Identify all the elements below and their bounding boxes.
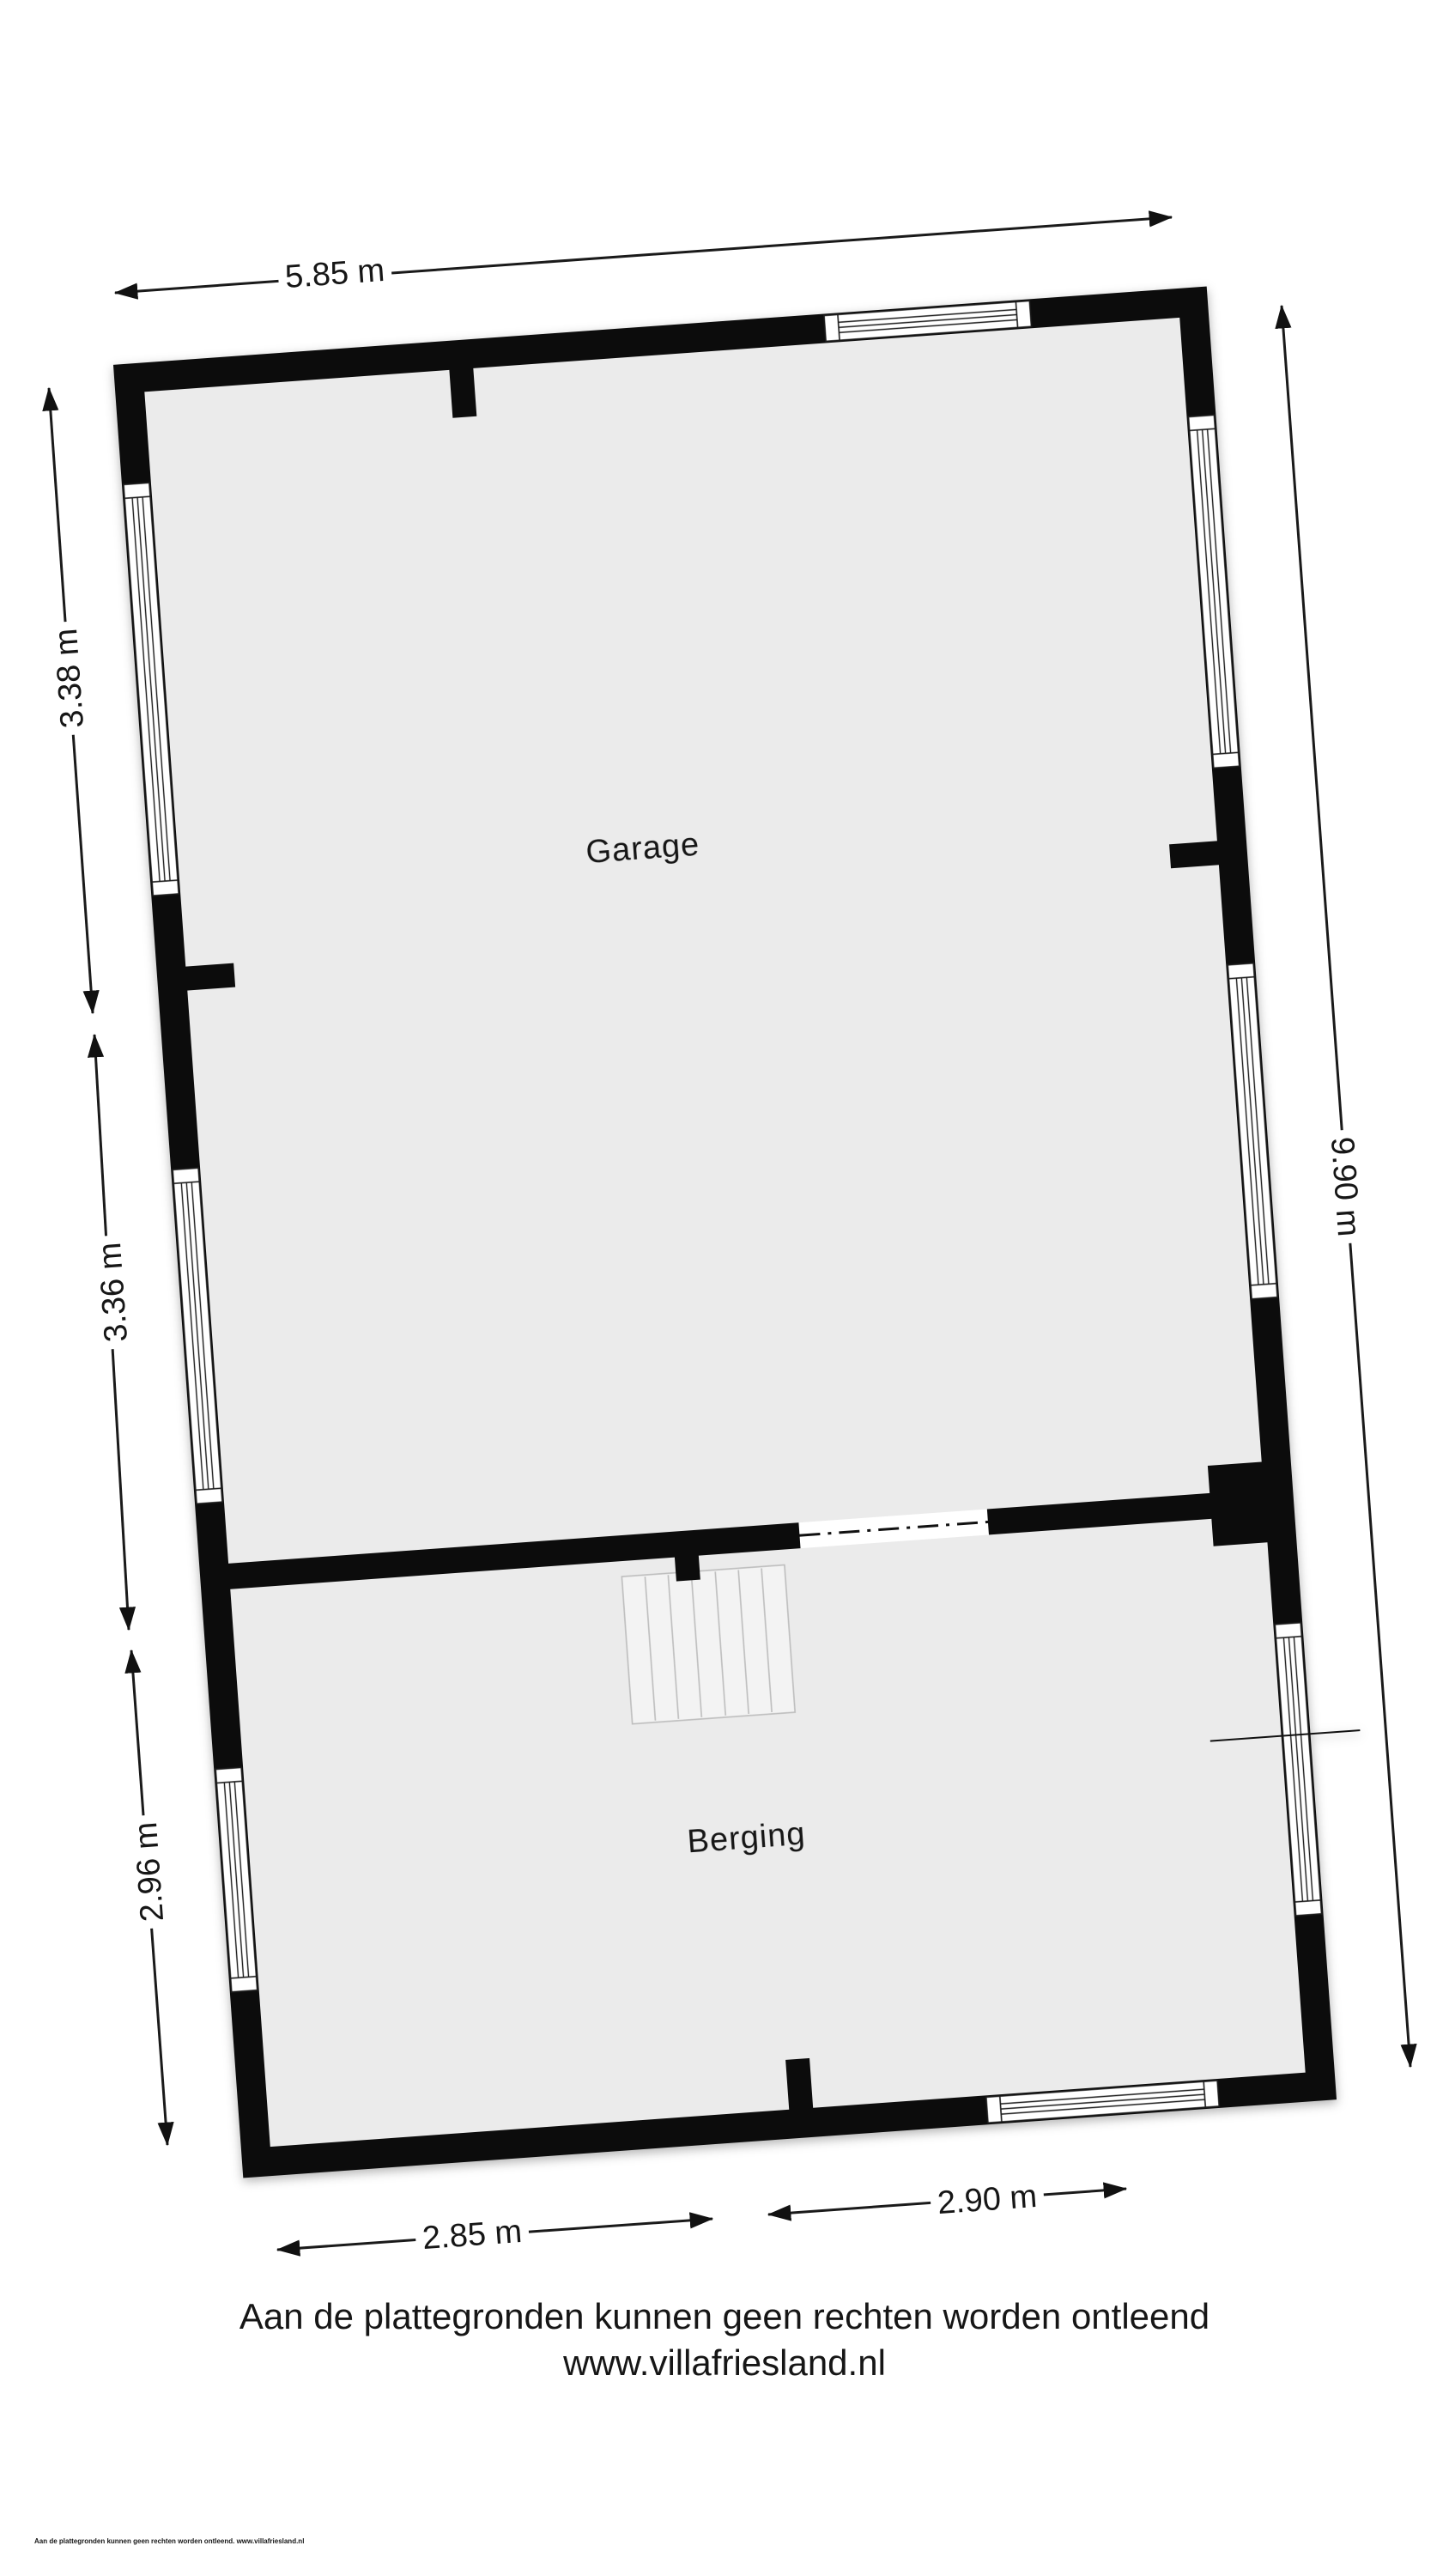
left-wall-stub <box>185 963 235 991</box>
dimension-left-1: 3.38 m <box>45 388 93 1013</box>
dimension-left-1-label: 3.38 m <box>48 627 91 729</box>
floorplan-canvas: Garage Berging 5.85 m 9.90 m 3.38 m 3.36… <box>0 0 1449 2576</box>
dimension-top-label: 5.85 m <box>284 252 386 295</box>
right-wall-stub <box>1169 841 1219 868</box>
dimension-bottom-2: 2.90 m <box>768 2176 1126 2221</box>
bottom-wall-stub <box>785 2058 813 2110</box>
divider-right-junction-pier <box>1208 1461 1268 1546</box>
stairs <box>621 1565 795 1724</box>
dimension-left-3-label: 2.96 m <box>128 1820 171 1923</box>
footer-website: www.villafriesland.nl <box>562 2342 886 2383</box>
divider-stair-stub <box>673 1530 700 1582</box>
dimension-bottom-1-label: 2.85 m <box>421 2214 524 2257</box>
top-wall-stub <box>449 368 476 418</box>
building: Garage Berging <box>113 283 1386 2178</box>
floor-area <box>144 318 1305 2147</box>
footer-disclaimer: Aan de plattegronden kunnen geen rechten… <box>239 2296 1210 2336</box>
dimension-top: 5.85 m <box>115 217 1172 296</box>
dimension-right-label: 9.90 m <box>1324 1136 1367 1238</box>
dimension-top-arrow <box>115 217 1172 293</box>
dimension-left-2: 3.36 m <box>89 1035 135 1630</box>
dimension-bottom-1: 2.85 m <box>277 2211 712 2257</box>
dimension-bottom-2-label: 2.90 m <box>937 2178 1039 2221</box>
dimension-left-3: 2.96 m <box>125 1650 171 2145</box>
fineprint-disclaimer: Aan de plattegronden kunnen geen rechten… <box>34 2537 304 2545</box>
dimension-left-2-label: 3.36 m <box>92 1241 135 1343</box>
floorplan-page: Garage Berging 5.85 m 9.90 m 3.38 m 3.36… <box>0 0 1449 2576</box>
